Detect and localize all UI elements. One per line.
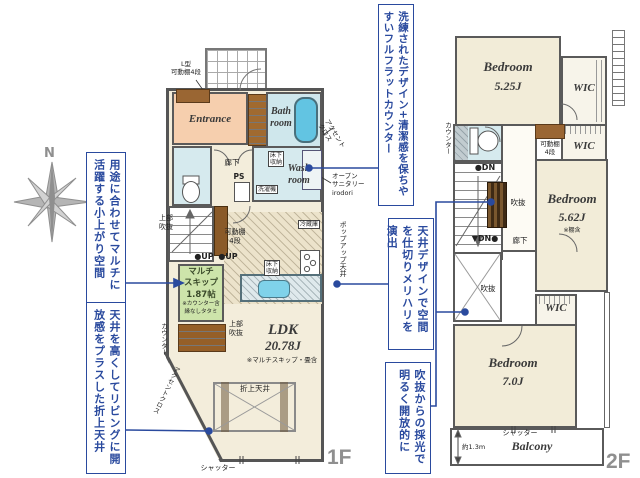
floor2-label: 2F — [606, 450, 631, 474]
toilet-room-1f — [172, 146, 212, 206]
wash-label: Wash room — [282, 163, 316, 186]
floor1-label: 1F — [327, 446, 352, 470]
floor-plan-page: N — [0, 0, 640, 478]
ldk-size: 20.78J — [250, 339, 316, 354]
void-stairs-label: 吹抜 — [507, 198, 529, 208]
dn-label-1: ●DN — [472, 163, 498, 173]
callout-ceiling-zoning: 天井デザインで空間を仕切りメリハリを演出 — [388, 218, 434, 350]
fridge-label: 冷蔵庫 — [298, 220, 320, 229]
underfloor-kitchen-label: 床下 収納 — [264, 260, 280, 276]
movable-shelf-label-2f: 可動棚 4段 — [538, 140, 562, 157]
void-open-label: 吹抜 — [476, 284, 500, 294]
wic2-shelf — [565, 126, 603, 134]
bedroom1-size: 5.25J — [466, 80, 550, 94]
dn-label-2: ▼DN● — [468, 234, 502, 244]
multi-skip-size: 1.87帖 — [180, 290, 222, 301]
kitchen-sink — [258, 280, 290, 298]
folded-ceiling-band-right — [280, 382, 288, 432]
l-shelf-label: L型 可動棚4段 — [164, 60, 208, 77]
entrance-steps — [248, 94, 268, 146]
ldk-note: ※マルチスキップ・畳含 — [232, 356, 332, 364]
side-wall-2f — [604, 292, 610, 428]
bedroom2-label: Bedroom — [538, 192, 606, 207]
ldk-label: LDK — [250, 322, 316, 339]
entrance-shelf — [176, 89, 210, 103]
counter-label-2f: カウンター — [443, 118, 451, 158]
up-label-2: ●UP — [216, 252, 240, 262]
toilet-counter-2f — [455, 126, 468, 160]
wic2-label: WIC — [565, 140, 603, 153]
callout-folded-ceiling: 天井を高くしてリビングに開放感をプラスした折上天井 — [86, 302, 126, 474]
popup-ceiling-label: ポップアップ天井 — [338, 210, 347, 288]
shutter-label-1f: シャッター — [198, 464, 238, 473]
balcony-depth-label: 約1.3m — [462, 443, 492, 451]
multi-skip-name: マルチ スキップ — [180, 267, 222, 289]
ps-label: PS — [230, 172, 248, 182]
stove — [300, 250, 320, 276]
shelf-2f — [535, 124, 565, 139]
eaves-ladder — [612, 30, 625, 106]
folded-ceiling-label: 折上天井 — [234, 384, 276, 394]
callout-raised-tatami: 用途に合わせてマルチに活躍する小上がり空間 — [86, 152, 126, 306]
bathtub — [294, 97, 318, 143]
bedroom1-label: Bedroom — [466, 60, 550, 75]
callout-flat-counter: 洗練されたデザイン+清潔感を保ちやすいフルフラットカウンター — [378, 4, 414, 206]
washer-label: 洗濯機 — [256, 185, 278, 194]
counter-label-1f: カウンター — [159, 320, 167, 358]
porch — [205, 48, 267, 92]
wic3-label: WIC — [537, 302, 575, 315]
north-label: N — [44, 146, 55, 161]
multi-skip-note1: ※カウンター含 — [179, 301, 223, 308]
up-label-1: ●UP — [192, 252, 216, 262]
open-sanitary-label: オープン サニタリー irodori — [332, 172, 372, 197]
bath-label: Bath room — [266, 106, 296, 129]
entrance-label: Entrance — [178, 113, 242, 126]
corridor-label-1f: 廊下 — [220, 158, 244, 168]
compass-icon — [14, 162, 90, 242]
bedroom2-note: ※棚含 — [538, 227, 606, 235]
corridor-label-2f: 廊下 — [508, 236, 532, 246]
callout-void-light: 吹抜からの採光で明るく開放的に — [385, 362, 431, 474]
bedroom3-size: 7.0J — [468, 375, 558, 389]
stair-railing-2f — [487, 182, 507, 228]
bedroom3-label: Bedroom — [468, 356, 558, 371]
upper-void-ldk-label: 上部 吹抜 — [226, 320, 246, 338]
shutter-label-2f: シャッター — [500, 429, 540, 438]
bedroom2 — [535, 159, 608, 292]
balcony-label: Balcony — [500, 440, 564, 454]
bedroom2-size: 5.62J — [538, 211, 606, 225]
tatami-counter — [178, 324, 226, 352]
folded-ceiling-band-left — [221, 382, 229, 432]
ps-box — [234, 182, 250, 202]
upper-void-stairs-label: 上部 吹抜 — [156, 214, 176, 232]
multi-skip-note2: 縁なしタタミ — [179, 309, 223, 316]
wic1-label: WIC — [565, 82, 603, 95]
movable-shelf-label-1f: 可動棚 4段 — [224, 228, 246, 246]
